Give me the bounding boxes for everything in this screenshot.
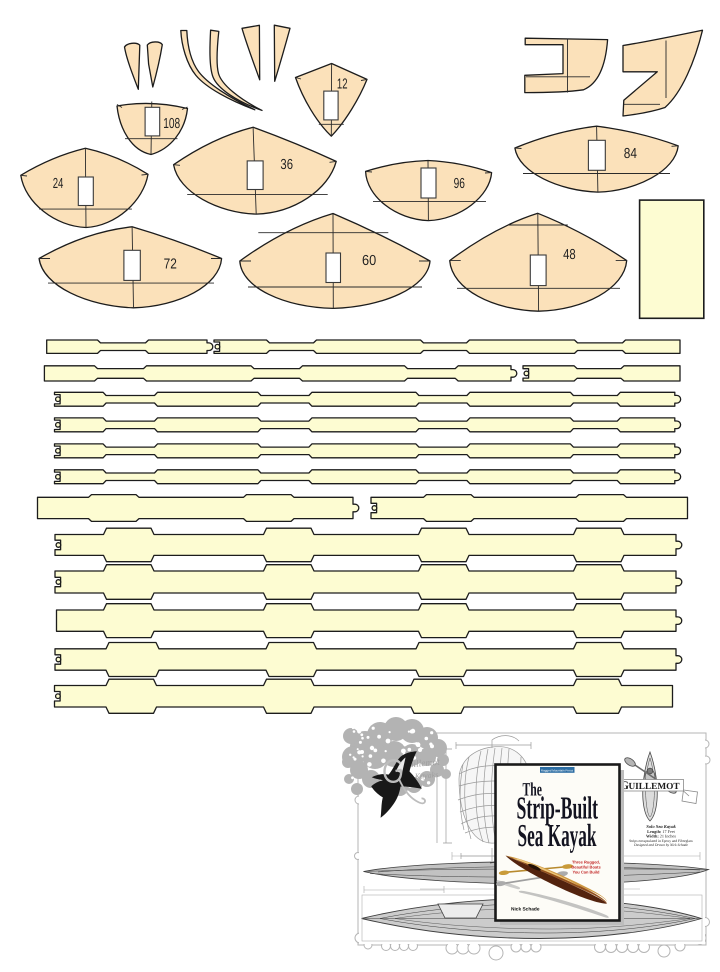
svg-text:You Can Build: You Can Build xyxy=(572,870,600,875)
svg-text:GUILLEMOT: GUILLEMOT xyxy=(620,780,680,792)
svg-text:36: 36 xyxy=(280,157,293,173)
svg-text:Nick Schade: Nick Schade xyxy=(511,907,540,913)
svg-text:24: 24 xyxy=(53,176,64,192)
svg-text:Designed and Drawn by Nick Sch: Designed and Drawn by Nick Schade xyxy=(633,843,688,847)
svg-text:48: 48 xyxy=(563,247,576,263)
svg-text:108: 108 xyxy=(163,116,180,132)
svg-text:96: 96 xyxy=(454,176,465,192)
svg-text:Sea Kayak: Sea Kayak xyxy=(518,817,597,853)
svg-text:Width: 21 Inches: Width: 21 Inches xyxy=(646,834,676,839)
svg-text:12: 12 xyxy=(337,77,348,93)
svg-text:84: 84 xyxy=(624,146,637,162)
svg-text:72: 72 xyxy=(164,257,177,273)
svg-text:60: 60 xyxy=(362,253,376,269)
svg-text:Ragged Mountain Press: Ragged Mountain Press xyxy=(541,768,574,772)
